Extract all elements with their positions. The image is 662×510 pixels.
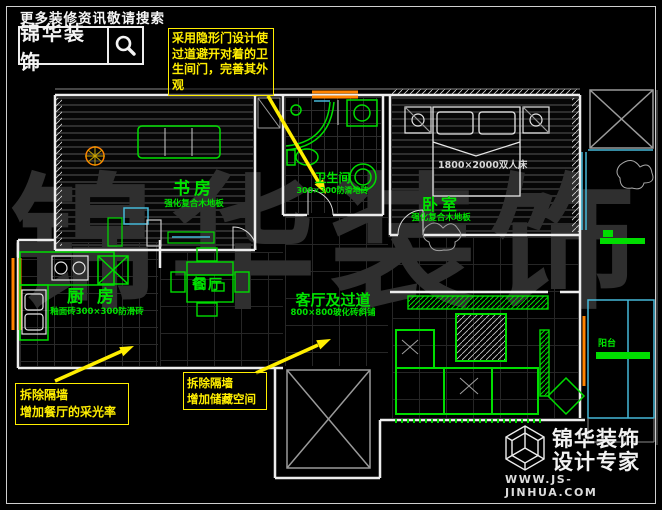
stove [52, 256, 88, 280]
callout-dining-light-line2: 增加餐厅的采光率 [20, 404, 124, 421]
kitchen-name: 厨房 [67, 287, 127, 307]
kitchen-floor-note: 釉面砖300×300防滑砖 [34, 308, 160, 318]
study-sofa [138, 126, 220, 158]
footer-brand-line2: 设计专家 [552, 446, 640, 476]
bath-name: 卫生间 [314, 171, 350, 185]
elevator-shaft-top [590, 90, 653, 148]
floorplan-page: 锦华装饰 [0, 0, 662, 510]
living-floor-note: 800×800玻化砖斜铺 [276, 309, 390, 319]
coffee-table [456, 314, 506, 361]
callout-storage: 拆除隔墙 增加储藏空间 [183, 372, 267, 410]
bedroom-plant [423, 223, 461, 251]
callout-storage-line1: 拆除隔墙 [187, 375, 263, 391]
callout-dining-light: 拆除隔墙 增加餐厅的采光率 [15, 383, 129, 425]
bed-size-label: 1800×2000双人床 [438, 157, 527, 171]
callout-hidden-door: 采用隐形门设计使过道避开对着的卫生间门，完善其外观 [168, 28, 274, 96]
floor-lamp-diamond [548, 378, 584, 414]
balcony-label: 阳台 [592, 339, 622, 349]
callout-dining-light-line1: 拆除隔墙 [20, 387, 124, 404]
study-label: 书房 强化复合木地板 [139, 180, 249, 209]
header-brand-text: 锦华装饰 [20, 28, 107, 63]
stairwell-shaft-bottom [287, 370, 370, 468]
callout-storage-line2: 增加储藏空间 [187, 391, 263, 407]
cube-logo-icon [502, 424, 548, 476]
bath-label: 卫生间 300×300防滑地砖 [285, 172, 380, 195]
bedroom-floor-note: 强化复合木地板 [395, 214, 487, 224]
living-label: 客厅及过道 800×800玻化砖斜铺 [276, 292, 390, 319]
balcony-name: 阳台 [598, 339, 616, 349]
bedroom-name: 卧室 [422, 195, 460, 214]
corner-plant [617, 160, 653, 188]
nightstands [405, 107, 549, 133]
kitchen-label: 厨房 釉面砖300×300防滑砖 [34, 288, 160, 317]
bedroom-label: 卧室 强化复合木地板 [395, 196, 487, 224]
header-logo: 锦华装饰 [18, 26, 144, 65]
footer-website: WWW.JS-JINHUA.COM [505, 473, 662, 499]
study-name: 书房 [173, 179, 215, 199]
study-floor-note: 强化复合木地板 [139, 200, 249, 210]
annotation-arrows [55, 96, 331, 381]
living-name: 客厅及过道 [295, 291, 370, 309]
dining-name: 餐厅 [192, 277, 224, 293]
entry-plant [85, 146, 105, 166]
dining-label: 餐厅 [180, 277, 236, 293]
bath-floor-note: 300×300防滑地砖 [285, 186, 380, 195]
bed [433, 107, 520, 196]
magnifier-icon [109, 28, 142, 63]
